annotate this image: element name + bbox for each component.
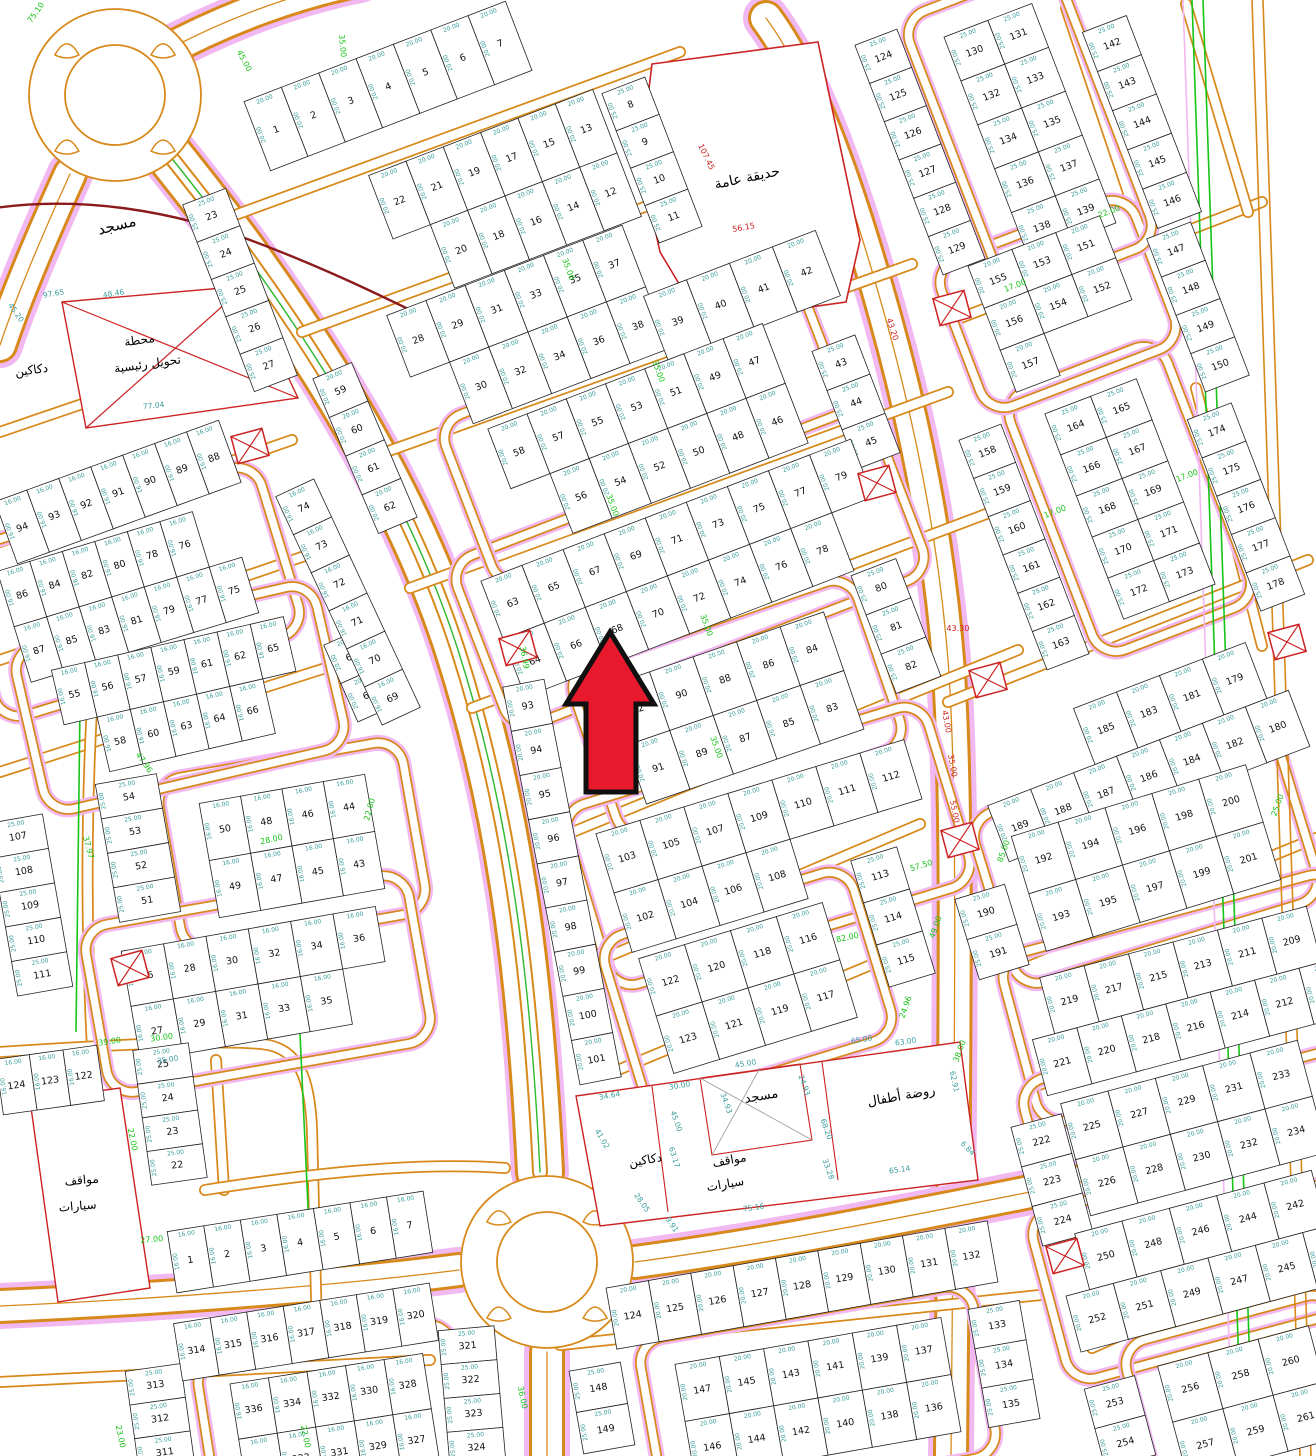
parcel-number: 31: [235, 1010, 249, 1023]
parcel-number: 24: [161, 1092, 175, 1105]
parcel-number: 47: [270, 873, 284, 886]
roundabout-island: [65, 45, 165, 145]
dimension-green: 45.00: [235, 49, 254, 73]
parcel-number: 98: [564, 921, 578, 934]
dimension-teal: 97.65: [42, 287, 65, 300]
parcel-block-b136-147: 14720.0020.0014520.0020.0014320.0020.001…: [675, 1317, 961, 1456]
arabic-label: دكاكين: [14, 361, 49, 380]
parcel-number: 52: [134, 860, 148, 873]
parcel-block-c22-25: 2525.0025.002425.0025.002325.0025.002225…: [133, 1043, 207, 1185]
dimension-green: 75.10: [26, 1, 47, 25]
parcel-number: 45: [311, 865, 325, 878]
map-canvas: 120.0020.00220.0020.00320.0020.00420.002…: [0, 0, 1316, 1456]
parcel-block-b256-261: 25620.0020.0025820.0020.0026020.0020.002…: [1158, 1326, 1316, 1456]
parcel-number: 331: [330, 1446, 350, 1456]
transformer-box: [858, 465, 896, 500]
parcel-block-c133-135: 13325.0025.0013425.0025.0013525.0025.00: [968, 1300, 1040, 1427]
parking-plot-sw: [30, 1088, 150, 1302]
transformer-box: [1268, 624, 1306, 659]
parcel-number: 323: [464, 1408, 483, 1421]
parcel-number: 97: [555, 876, 569, 889]
dimension-green: 24.96: [898, 995, 914, 1020]
parcel-number: 36: [352, 932, 366, 945]
parcel-number: 43: [352, 858, 366, 871]
parcel-number: 30: [225, 955, 239, 968]
parcel-number: 94: [529, 744, 543, 757]
parcel-block-b43-50: 5016.0016.004816.0016.004616.0016.004416…: [199, 774, 385, 917]
parcel-number: 322: [461, 1374, 480, 1387]
arabic-label: مسجد: [96, 212, 138, 239]
dimension-green: 57.50: [909, 858, 934, 873]
utility-line: [76, 706, 80, 1032]
parcel-number: 95: [538, 788, 552, 801]
dimension-green: 27.00: [140, 1234, 164, 1245]
parcel-number: 53: [128, 825, 142, 838]
parcel-number: 321: [458, 1340, 477, 1353]
parcel-number: 34: [310, 940, 324, 953]
parcel-block-c148-149: 14825.0025.0014925.0025.00: [569, 1362, 635, 1454]
dimension-red: 43.30: [947, 624, 970, 633]
dimension-green: 25.00: [1270, 793, 1286, 818]
parcel-number: 324: [467, 1442, 486, 1455]
parcel-number: 46: [301, 808, 315, 821]
parcel-number: 44: [342, 801, 356, 814]
dimension-teal: 45.00: [734, 1057, 757, 1070]
dimension-teal: 75.16: [742, 1202, 765, 1214]
parcel-number: 54: [122, 791, 136, 804]
dimension-green: 17.00: [1175, 467, 1200, 484]
parcel-number: 311: [155, 1446, 174, 1456]
dimension-green: 82.00: [835, 931, 859, 945]
dimension-teal: 63.00: [894, 1036, 917, 1048]
parcel-number: 33: [277, 1002, 291, 1015]
parcel-number: 99: [572, 965, 586, 978]
parcel-number: 35: [320, 995, 334, 1008]
parcel-number: 50: [218, 823, 232, 836]
parcel-number: 32: [268, 947, 282, 960]
parcel-block-c321-324: 32125.0025.0032225.0025.0032325.0025.003…: [438, 1326, 506, 1456]
transformer-box: [231, 428, 269, 463]
roundabout: [29, 9, 201, 181]
roundabout-island: [497, 1212, 597, 1312]
parcel-number: 29: [193, 1017, 207, 1030]
dimension-green: 23.00: [114, 1424, 128, 1448]
dimension-green: 35.00: [337, 34, 348, 58]
parcel-block-c107-111: 10725.0025.0010825.0025.0010925.0025.001…: [0, 814, 73, 996]
parcel-number: 93: [521, 700, 535, 713]
parcel-number: 96: [547, 832, 561, 845]
parcel-number: 28: [183, 962, 197, 975]
parcel-number: 49: [228, 880, 242, 893]
parcel-number: 51: [140, 894, 154, 907]
parcel-block-c253-254: 25325.0025.0025425.0025.00: [1084, 1376, 1155, 1456]
parcel-number: 23: [166, 1126, 180, 1139]
parcel-number: 22: [170, 1159, 184, 1172]
cadastral-map: 120.0020.00220.0020.00320.0020.00420.002…: [0, 0, 1316, 1456]
parcel-number: 48: [260, 816, 274, 829]
dimension-teal: 9.91: [664, 1215, 681, 1234]
